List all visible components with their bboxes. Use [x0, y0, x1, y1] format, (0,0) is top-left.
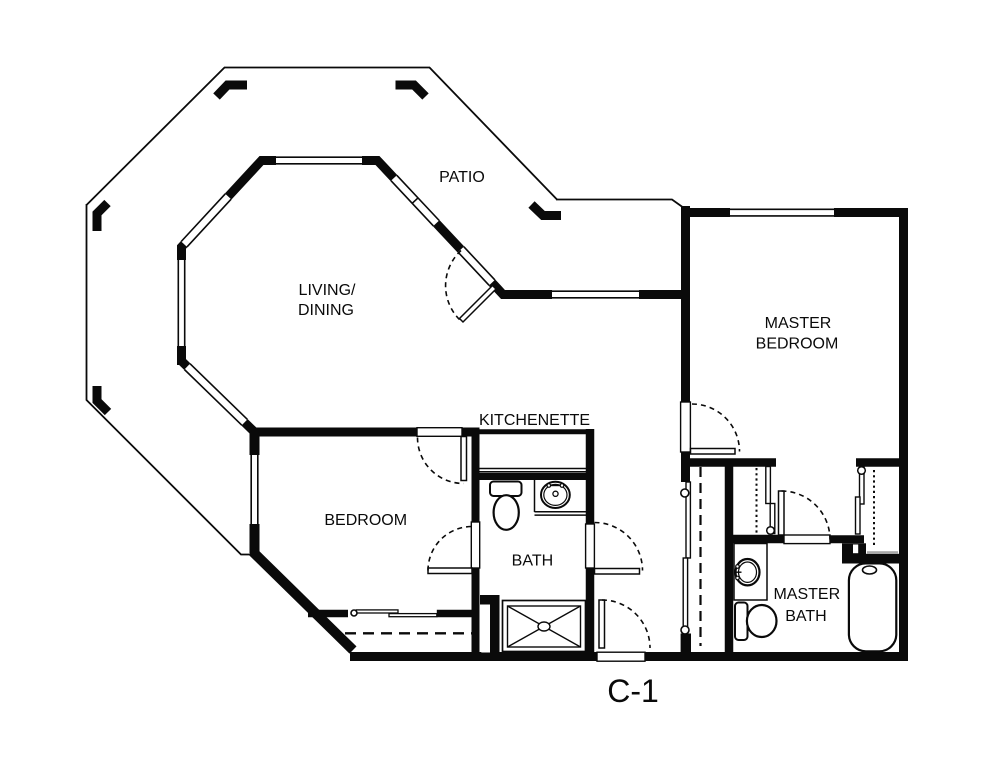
- svg-text:BATH: BATH: [512, 553, 553, 570]
- svg-text:C-1: C-1: [607, 673, 659, 709]
- svg-text:BEDROOM: BEDROOM: [756, 336, 839, 353]
- svg-text:KITCHENETTE: KITCHENETTE: [479, 412, 590, 429]
- svg-text:MASTER: MASTER: [765, 315, 832, 332]
- svg-text:BEDROOM: BEDROOM: [324, 512, 407, 529]
- svg-text:LIVING/: LIVING/: [299, 282, 356, 299]
- svg-text:BATH: BATH: [785, 608, 826, 625]
- svg-text:DINING: DINING: [298, 302, 354, 319]
- svg-text:PATIO: PATIO: [439, 169, 485, 186]
- svg-text:MASTER: MASTER: [773, 586, 840, 603]
